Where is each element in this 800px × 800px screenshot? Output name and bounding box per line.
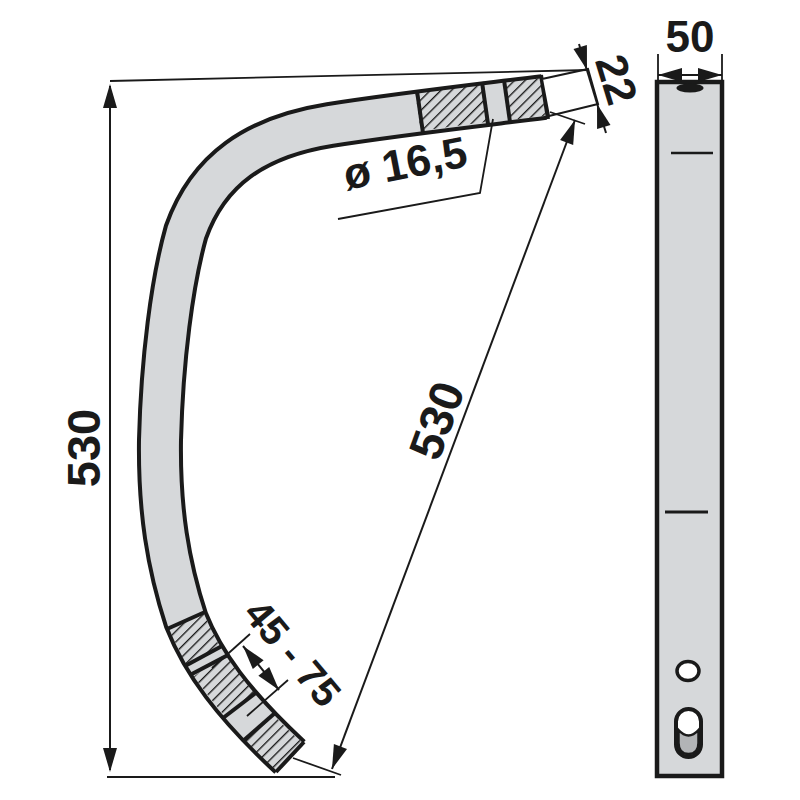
dim-profile-width: 50 <box>658 12 722 82</box>
dim-diagonal-label: 530 <box>398 374 475 466</box>
side-top-edge-mark <box>677 84 704 93</box>
hatch-bands-top <box>418 97 543 112</box>
dim-height-label: 530 <box>57 409 110 487</box>
drawing-canvas: 530 530 22 ø 16,5 45 - 75 50 <box>0 0 800 800</box>
side-round-hole <box>677 662 699 681</box>
dim-profile-width-label: 50 <box>666 12 715 61</box>
technical-drawing: 530 530 22 ø 16,5 45 - 75 50 <box>0 0 800 800</box>
part-side-view <box>657 82 722 776</box>
